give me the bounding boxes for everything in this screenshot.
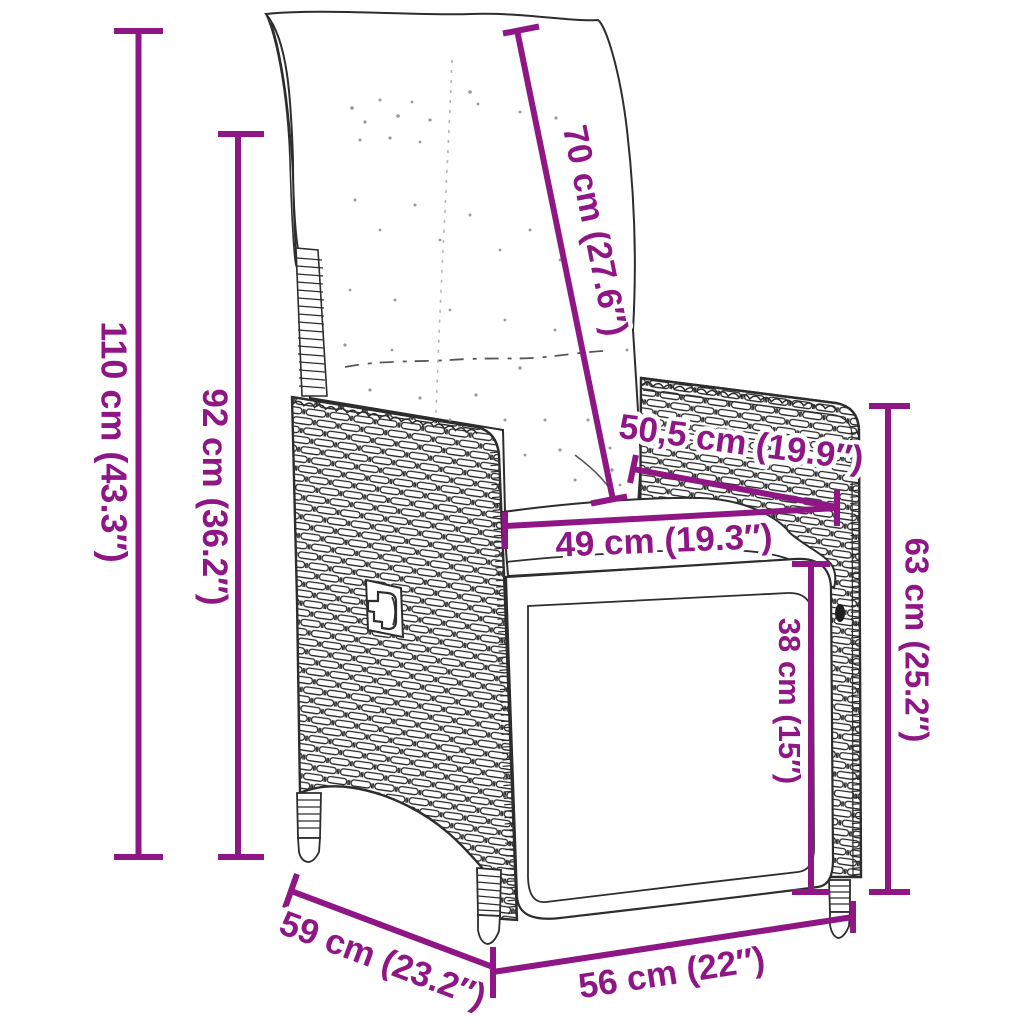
svg-text:110 cm (43.3″): 110 cm (43.3″): [93, 321, 134, 562]
svg-text:63 cm (25.2″): 63 cm (25.2″): [898, 538, 935, 743]
svg-text:38 cm (15″): 38 cm (15″): [772, 618, 807, 785]
svg-text:92 cm (36.2″): 92 cm (36.2″): [195, 388, 234, 605]
